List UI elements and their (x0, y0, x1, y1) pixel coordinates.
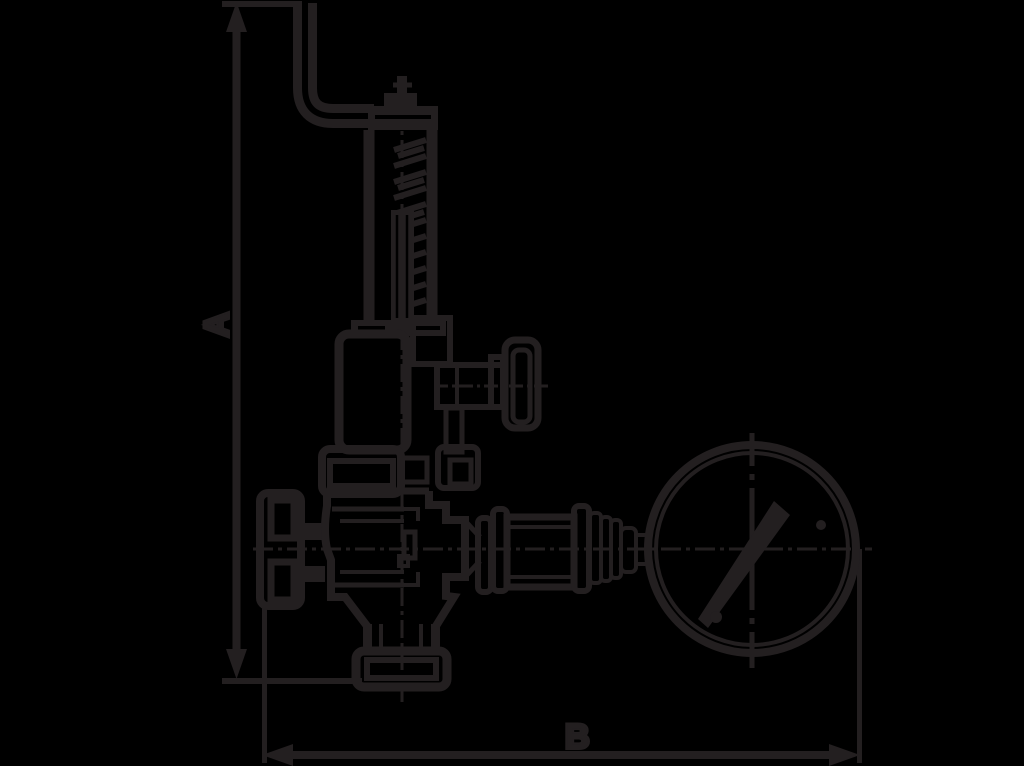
svg-text:A: A (198, 312, 236, 337)
svg-text:B: B (565, 718, 590, 756)
